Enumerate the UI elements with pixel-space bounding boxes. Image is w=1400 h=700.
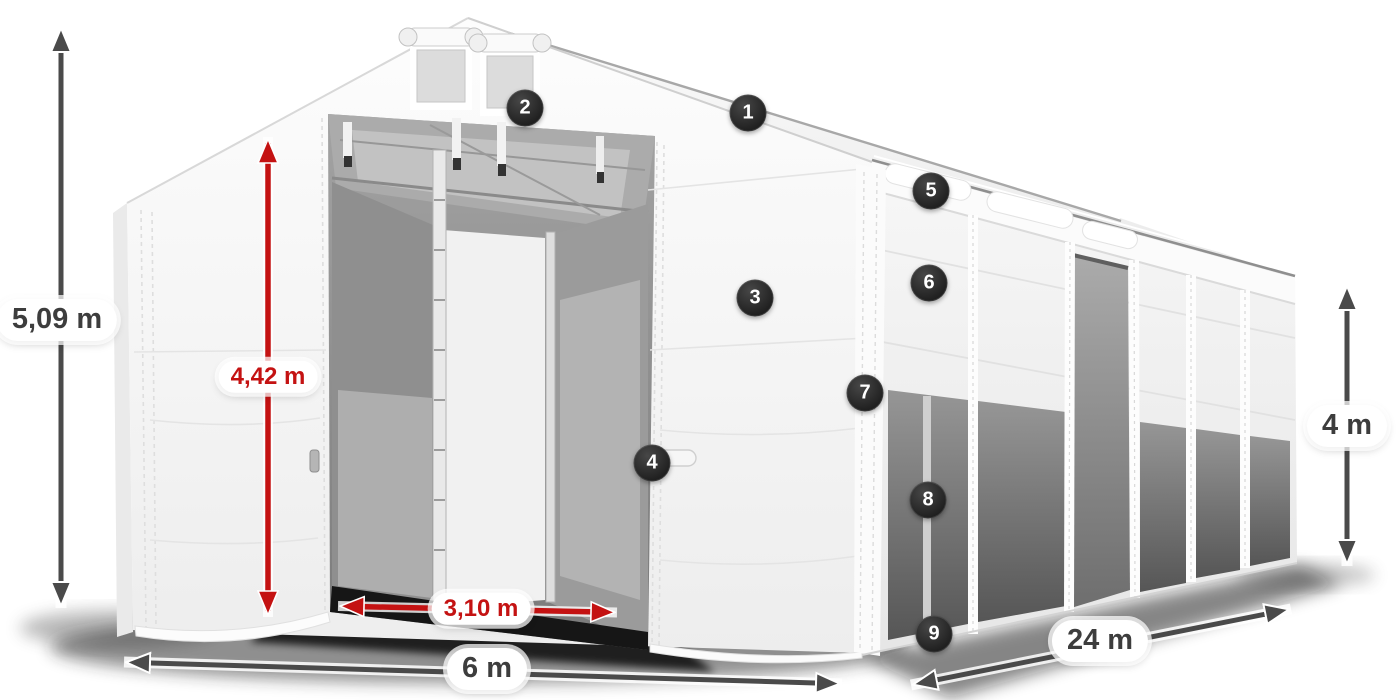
dimension-label-side-length: 24 m — [1052, 620, 1148, 662]
feature-marker-4[interactable]: 4 — [634, 445, 671, 482]
dimension-label-inner-height: 4,42 m — [219, 361, 318, 393]
door-latch — [310, 450, 319, 472]
tent-illustration — [0, 0, 1400, 700]
feature-marker-1[interactable]: 1 — [730, 95, 767, 132]
feature-marker-5[interactable]: 5 — [913, 173, 950, 210]
dimension-label-side-height: 4 m — [1307, 405, 1387, 447]
feature-marker-6[interactable]: 6 — [911, 265, 948, 302]
feature-marker-9[interactable]: 9 — [916, 616, 953, 653]
dimension-label-front-width: 6 m — [447, 648, 527, 690]
feature-marker-8[interactable]: 8 — [910, 482, 947, 519]
feature-marker-3[interactable]: 3 — [737, 280, 774, 317]
product-diagram: 5,09 m 4,42 m 3,10 m 6 m 24 m 4 m 1 2 3 … — [0, 0, 1400, 700]
tent-interior — [328, 114, 655, 650]
feature-marker-2[interactable]: 2 — [507, 90, 544, 127]
feature-marker-7[interactable]: 7 — [847, 375, 884, 412]
dimension-label-inner-door-width: 3,10 m — [432, 593, 531, 625]
dimension-label-total-height: 5,09 m — [0, 299, 117, 341]
